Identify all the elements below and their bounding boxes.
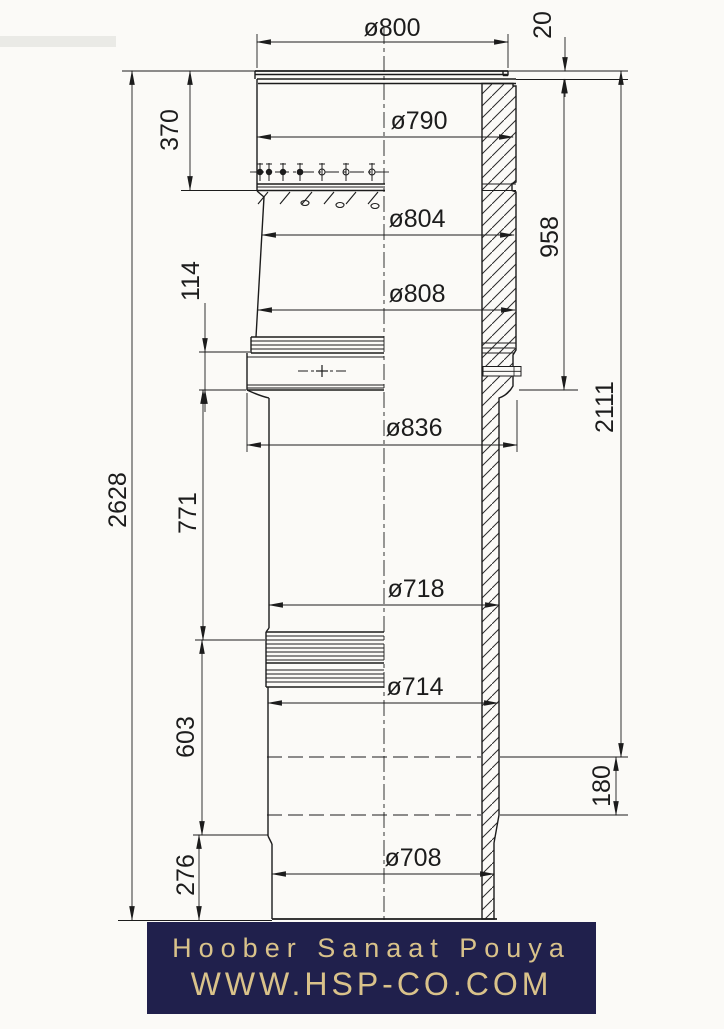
dim-label-diameter-708: ø708 [385, 844, 442, 872]
center-lines [250, 28, 392, 921]
dim-label-diameter-804: ø804 [389, 205, 446, 233]
dim-label-diameter-790: ø790 [391, 107, 448, 135]
dim-label-114: 114 [177, 261, 205, 301]
locating-pin [483, 367, 521, 377]
hidden-lines [267, 757, 481, 815]
dim-label-276: 276 [172, 854, 200, 896]
dim-label-diameter-800: ø800 [364, 14, 421, 42]
liner-outline [247, 71, 516, 919]
dim-label-diameter-714: ø714 [387, 673, 444, 701]
dim-label-diameter-808: ø808 [389, 280, 446, 308]
dim-label-603: 603 [172, 716, 200, 758]
groove-lines [247, 192, 384, 682]
dim-label-diameter-718: ø718 [388, 575, 445, 603]
bolt [280, 163, 286, 181]
scan-artifact [0, 36, 116, 47]
bolt [297, 163, 303, 181]
bolt [257, 163, 263, 181]
bolt [266, 163, 272, 181]
dim-label-771: 771 [174, 492, 202, 534]
dimension-labels: ø800 ø790 ø804 ø808 ø836 ø718 ø714 ø708 … [104, 11, 619, 896]
technical-drawing-page: ø800 ø790 ø804 ø808 ø836 ø718 ø714 ø708 … [0, 0, 724, 1024]
dim-label-2111: 2111 [591, 381, 619, 433]
company-website: WWW.HSP-CO.COM [147, 966, 596, 1003]
company-watermark: Hoober Sanaat Pouya WWW.HSP-CO.COM [147, 922, 596, 1014]
serration-marks [258, 192, 379, 209]
dim-label-2628: 2628 [104, 472, 132, 528]
dim-label-diameter-836: ø836 [386, 414, 443, 442]
company-name: Hoober Sanaat Pouya [147, 933, 596, 964]
dim-label-958: 958 [536, 216, 564, 258]
dim-label-370: 370 [156, 109, 184, 151]
section-wall [482, 84, 521, 920]
dim-label-180: 180 [588, 765, 616, 807]
dim-label-20: 20 [529, 11, 557, 39]
extension-lines [118, 34, 628, 921]
cylinder-liner-drawing: ø800 ø790 ø804 ø808 ø836 ø718 ø714 ø708 … [0, 0, 724, 1024]
dimension-lines [132, 37, 621, 920]
